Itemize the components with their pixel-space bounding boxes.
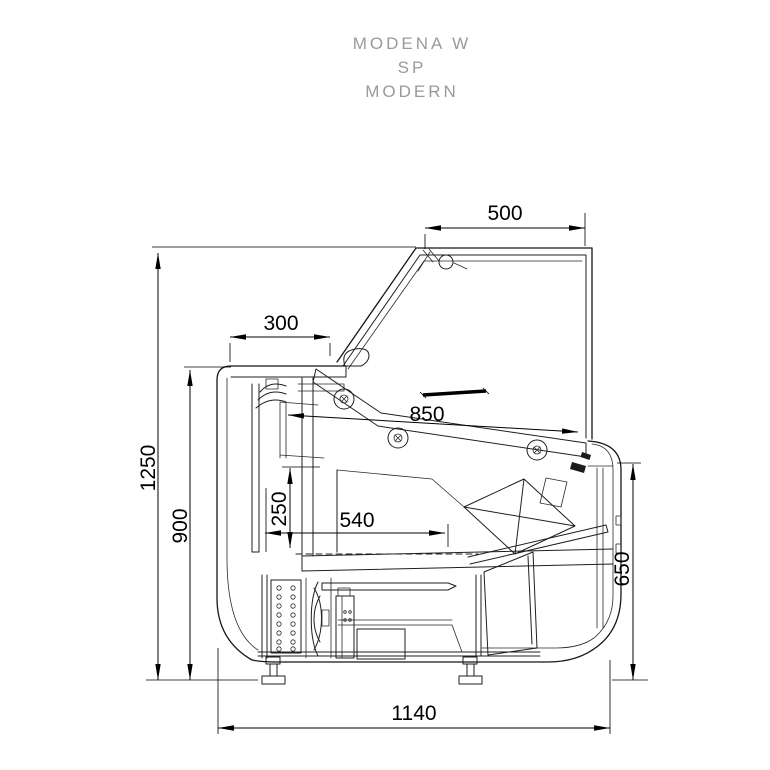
tray-cross-brace [464, 479, 575, 554]
title-model: MODENA W [353, 34, 471, 53]
dim-250-label: 250 [268, 491, 291, 526]
dim-500-label: 500 [487, 202, 522, 225]
dimension-worktop-height-900: 900 [169, 367, 231, 680]
glass-canopy-assembly [337, 248, 592, 439]
rail-screw-icon [388, 428, 408, 448]
compressor-tower [336, 596, 354, 658]
dim-650-label: 650 [611, 551, 634, 586]
dimension-canopy-width-500: 500 [425, 202, 585, 249]
foot [459, 657, 482, 684]
dim-540-label: 540 [339, 509, 374, 532]
airflow-icon [256, 384, 286, 408]
dim-1250-label: 1250 [137, 445, 160, 492]
title-style: MODERN [365, 82, 459, 101]
drawing-page: MODENA W SP MODERN [0, 0, 770, 770]
machine-compartment [258, 552, 540, 659]
dimension-well-depth-250: 250 [268, 467, 320, 548]
dim-850-label: 850 [409, 403, 444, 426]
rail-screw-icon [334, 389, 354, 409]
dimension-base-depth-1140: 1140 [218, 648, 610, 734]
dimension-front-height-650: 650 [611, 463, 648, 680]
shelf-rail [313, 369, 591, 473]
dim-1140-label: 1140 [391, 702, 436, 725]
condenser-grille [271, 580, 301, 653]
grille-holes [277, 586, 295, 651]
dimension-well-width-540: 540 [265, 488, 448, 552]
title-variant: SP [398, 58, 427, 77]
dimension-worktop-depth-300: 300 [230, 312, 330, 362]
front-duct-panel [484, 552, 537, 655]
dim-300-label: 300 [263, 312, 298, 335]
technical-drawing-display-case-cross-section: MODENA W SP MODERN [0, 0, 770, 770]
lamp-icon [439, 255, 453, 269]
compressor-box [357, 629, 405, 659]
rail-screw-icon [527, 440, 547, 460]
adjustable-feet [262, 657, 482, 684]
title-block: MODENA W SP MODERN [353, 34, 471, 101]
dim-900-label: 900 [169, 508, 192, 543]
